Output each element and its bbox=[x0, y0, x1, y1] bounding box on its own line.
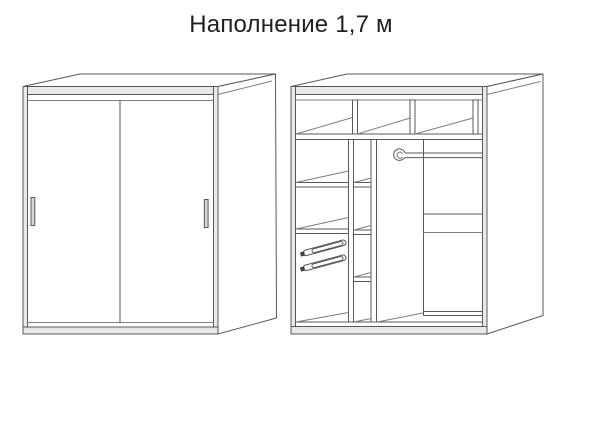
shelf-divider bbox=[410, 100, 415, 136]
door-handle-right-icon bbox=[204, 200, 208, 228]
carcass-front bbox=[291, 87, 487, 335]
base-band bbox=[23, 327, 218, 334]
shelf-board bbox=[296, 183, 349, 188]
vertical-partition bbox=[371, 140, 377, 323]
shelf-board bbox=[354, 277, 372, 282]
left-edge-band bbox=[291, 87, 296, 335]
shelf-board bbox=[354, 230, 372, 235]
rod-bracket-icon bbox=[394, 149, 405, 160]
side-panel bbox=[487, 74, 543, 334]
right-edge-band bbox=[214, 87, 219, 335]
page: Наполнение 1,7 м bbox=[0, 0, 600, 422]
vertical-partition bbox=[349, 140, 354, 323]
shelf-board bbox=[354, 183, 372, 188]
shelf-divider bbox=[473, 100, 478, 136]
bottom-shoe-shelf bbox=[424, 312, 483, 316]
side-panel bbox=[218, 74, 277, 334]
top-edge-band bbox=[291, 87, 487, 95]
shelf-board bbox=[296, 229, 349, 234]
door-handle-left-icon bbox=[31, 198, 35, 226]
wardrobe-diagram bbox=[0, 0, 600, 422]
top-edge-band bbox=[23, 87, 218, 95]
top-shelf-board bbox=[296, 134, 483, 140]
interior-wardrobe-view bbox=[291, 74, 543, 334]
left-edge-band bbox=[23, 87, 28, 335]
base-band bbox=[291, 327, 487, 335]
closed-wardrobe-view bbox=[23, 74, 277, 334]
shelf-divider bbox=[353, 100, 358, 136]
right-edge-band bbox=[483, 87, 488, 335]
